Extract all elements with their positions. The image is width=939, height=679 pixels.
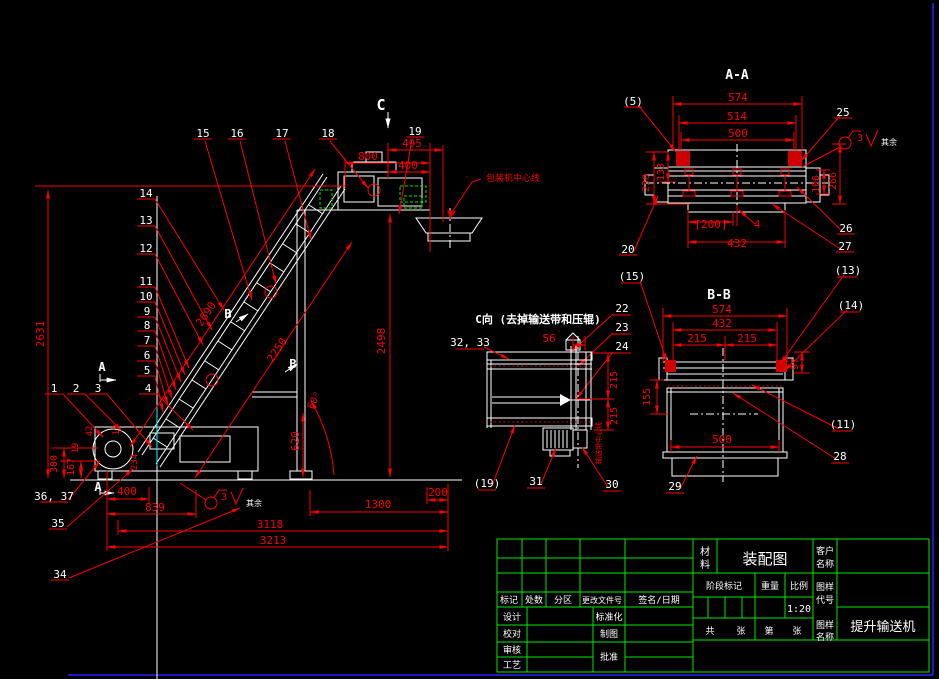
c-dim-215-lower: 215 [609, 407, 620, 425]
dim-400-bottom: 400 [117, 485, 137, 498]
aa-dim-133: 133 [656, 163, 667, 181]
part-label-13: 13 [139, 214, 152, 227]
part-label-8: 8 [144, 319, 151, 332]
aa-dim-514: 514 [727, 110, 747, 123]
tb-label-tuyangdaihao-1: 图样 [816, 581, 834, 593]
view-c-dimensions [456, 336, 621, 491]
roughness-aa-value: 3 [857, 133, 863, 144]
tb-label-zhongliang: 重量 [761, 580, 779, 592]
part-label-12: 12 [139, 242, 152, 255]
tb-label-biaoji: 标记 [500, 594, 518, 606]
dim-800: 800 [358, 150, 378, 163]
view-title-bb: B-B [707, 288, 731, 303]
tb-label-fenqu: 分区 [554, 595, 572, 606]
roughness-main-value: 3 [221, 492, 227, 503]
aa-dim-230: 230 [641, 174, 652, 192]
dim-495: 495 [402, 137, 422, 150]
c-part-label-24: 24 [615, 340, 629, 353]
aa-part-label-20: 20 [621, 243, 634, 256]
drive-motor [543, 428, 587, 456]
dim-200: 200 [428, 486, 448, 499]
aa-dim-574: 574 [728, 91, 748, 104]
dim-1300: 1300 [365, 498, 392, 511]
aa-dim-4: 4 [754, 218, 761, 231]
view-title-c: C向 (去掉输送带和压辊) [475, 312, 601, 326]
tb-label-gongyi: 工艺 [503, 660, 521, 671]
section-b-arrow-upper [236, 314, 248, 322]
tb-label-zhang-1: 张 [736, 626, 745, 637]
dim-300: 300 [49, 455, 60, 473]
section-marker-c: C [376, 96, 385, 114]
tb-label-genggaiwenjianhao: 更改文件号 [582, 595, 622, 605]
centerline-note-leader [452, 179, 481, 212]
tb-label-gong: 共 [705, 626, 714, 637]
part-label-7: 7 [144, 334, 151, 347]
aa-part-label-5: (5) [623, 95, 643, 108]
c-part-label-23: 23 [615, 321, 628, 334]
roughness-symbol-main [180, 483, 243, 509]
aa-part-label-25: 25 [836, 106, 849, 119]
part-label-36-37: 36, 37 [34, 490, 74, 503]
part-label-10: 10 [139, 290, 152, 303]
c-part-label-30: 30 [605, 478, 618, 491]
aa-dim-500: 500 [728, 127, 748, 140]
cad-viewport[interactable]: C1516171819141312111098765123436, 373534… [0, 0, 939, 679]
tb-label-kehu-1: 客户 [816, 545, 834, 557]
dim-167: 167 [66, 458, 77, 476]
part-label-15: 15 [196, 127, 209, 140]
section-marker-a-lower: A [94, 480, 102, 494]
bearing-block-left [676, 151, 690, 166]
note-packer-centerline: 包装机中心线 [486, 172, 540, 184]
dim-2631: 2631 [34, 321, 47, 348]
view-title-aa: A-A [725, 68, 749, 83]
bb-part-label-28: 28 [833, 450, 846, 463]
tb-label-tuyangdaihao-2: 代号 [816, 595, 834, 606]
drawing-canvas[interactable]: C1516171819141312111098765123436, 373534… [0, 0, 939, 679]
dim-3118: 3118 [257, 518, 284, 531]
dim-60deg: 60° [306, 390, 325, 411]
c-part-label-31: 31 [529, 475, 542, 488]
tb-label-zhang-2: 张 [792, 626, 801, 637]
part-label-17: 17 [275, 127, 288, 140]
main-view-dimensions [35, 137, 481, 580]
c-part-label-32-33: 32, 33 [450, 336, 490, 349]
tb-value-scale: 1:20 [787, 604, 811, 615]
roughness-main-rest: 其余 [246, 498, 262, 508]
dim-234: 234 [130, 454, 140, 470]
c-dim-215-upper: 215 [609, 371, 620, 389]
bb-dim-155: 155 [642, 388, 653, 406]
dim-42: 42 [85, 426, 95, 437]
dim-2250: 2250 [264, 335, 290, 364]
view-c-geometry [487, 333, 592, 468]
tb-label-tuyangmingcheng-1: 图样 [816, 619, 834, 631]
part-label-34: 34 [53, 568, 67, 581]
tb-label-shenhe: 审核 [503, 644, 521, 656]
main-view-hidden-green [320, 186, 426, 208]
section-marker-b-upper: B [224, 307, 231, 321]
section-bb-geometry [659, 348, 793, 482]
aa-part-label-27: 27 [838, 240, 851, 253]
section-marker-a-upper: A [98, 360, 106, 374]
part-label-16: 16 [230, 127, 243, 140]
tb-value-drawing-name: 提升输送机 [850, 619, 915, 635]
c-part-label-19: (19) [474, 477, 501, 490]
discharge-hopper [416, 218, 482, 233]
dim-400-top: 400 [398, 159, 418, 172]
tb-label-kehu-2: 名称 [816, 558, 834, 570]
part-label-35: 35 [51, 517, 64, 530]
part-label-1: 1 [51, 382, 58, 395]
c-note-centerline: 输送带中心线 [594, 422, 603, 464]
dim-839: 839 [145, 501, 165, 514]
bb-dim-97: 97 [790, 358, 801, 370]
bb-dim-574: 574 [712, 303, 732, 316]
bb-dim-215-left: 215 [687, 332, 707, 345]
part-label-6: 6 [144, 349, 151, 362]
tb-label-tuyangmingcheng-2: 名称 [816, 631, 834, 643]
tb-value-zhuangpeitu: 装配图 [742, 550, 787, 568]
dim-19: 19 [71, 443, 81, 454]
main-view-geometry [70, 112, 482, 679]
part-label-14: 14 [139, 187, 153, 200]
dim-13: 13 [112, 425, 122, 436]
bb-dim-432: 432 [712, 317, 732, 330]
tb-label-qianming-riqi: 签名/日期 [638, 594, 679, 606]
bb-part-label-13: (13) [835, 264, 862, 277]
part-label-11: 11 [139, 275, 152, 288]
part-label-3: 3 [95, 382, 102, 395]
aa-dim-106: 106 [811, 175, 822, 193]
tb-label-zhitu: 制图 [600, 628, 618, 640]
tb-label-jiaodui: 校对 [503, 628, 521, 640]
roughness-aa-rest: 其余 [881, 137, 897, 147]
bb-dim-500: 500 [712, 433, 732, 446]
part-label-9: 9 [144, 305, 151, 318]
dim-3213: 3213 [260, 534, 287, 547]
part-label-18: 18 [321, 127, 334, 140]
aa-dim-200: [200] [694, 218, 727, 231]
tb-label-biaozhunhua: 标准化 [595, 611, 622, 623]
tb-label-di: 第 [764, 625, 773, 637]
tb-label-cailiao-2: 料 [700, 558, 710, 571]
aa-dim-432: 432 [727, 237, 747, 250]
bearing-block-right [788, 151, 802, 166]
part-label-4: 4 [145, 382, 152, 395]
aa-part-label-26: 26 [839, 222, 852, 235]
tb-label-chushu: 处数 [525, 594, 543, 606]
tb-label-cailiao-1: 材 [700, 545, 710, 558]
tb-label-jieduanbiaoji: 阶段标记 [706, 580, 742, 592]
tb-label-sheji: 设计 [503, 611, 521, 623]
dim-620: 620 [289, 431, 302, 451]
part-label-5: 5 [144, 364, 151, 377]
bb-part-label-11: (11) [830, 418, 857, 431]
sheet-frame [68, 3, 933, 675]
part-label-2: 2 [73, 382, 80, 395]
c-part-label-22: 22 [615, 302, 628, 315]
bb-part-label-14: (14) [838, 299, 865, 312]
aa-dim-266: 266 [828, 172, 839, 190]
tb-label-bili: 比例 [790, 580, 808, 592]
c-dim-56: 56 [542, 332, 555, 345]
tb-label-pizhun: 批准 [600, 651, 618, 663]
dim-2498: 2498 [375, 328, 388, 355]
bb-part-label-29: 29 [668, 480, 681, 493]
bb-dim-215-right: 215 [737, 332, 757, 345]
section-marker-b-lower: B [289, 357, 296, 371]
bb-part-label-15: (15) [619, 270, 646, 283]
angle-60-arc [311, 401, 334, 475]
